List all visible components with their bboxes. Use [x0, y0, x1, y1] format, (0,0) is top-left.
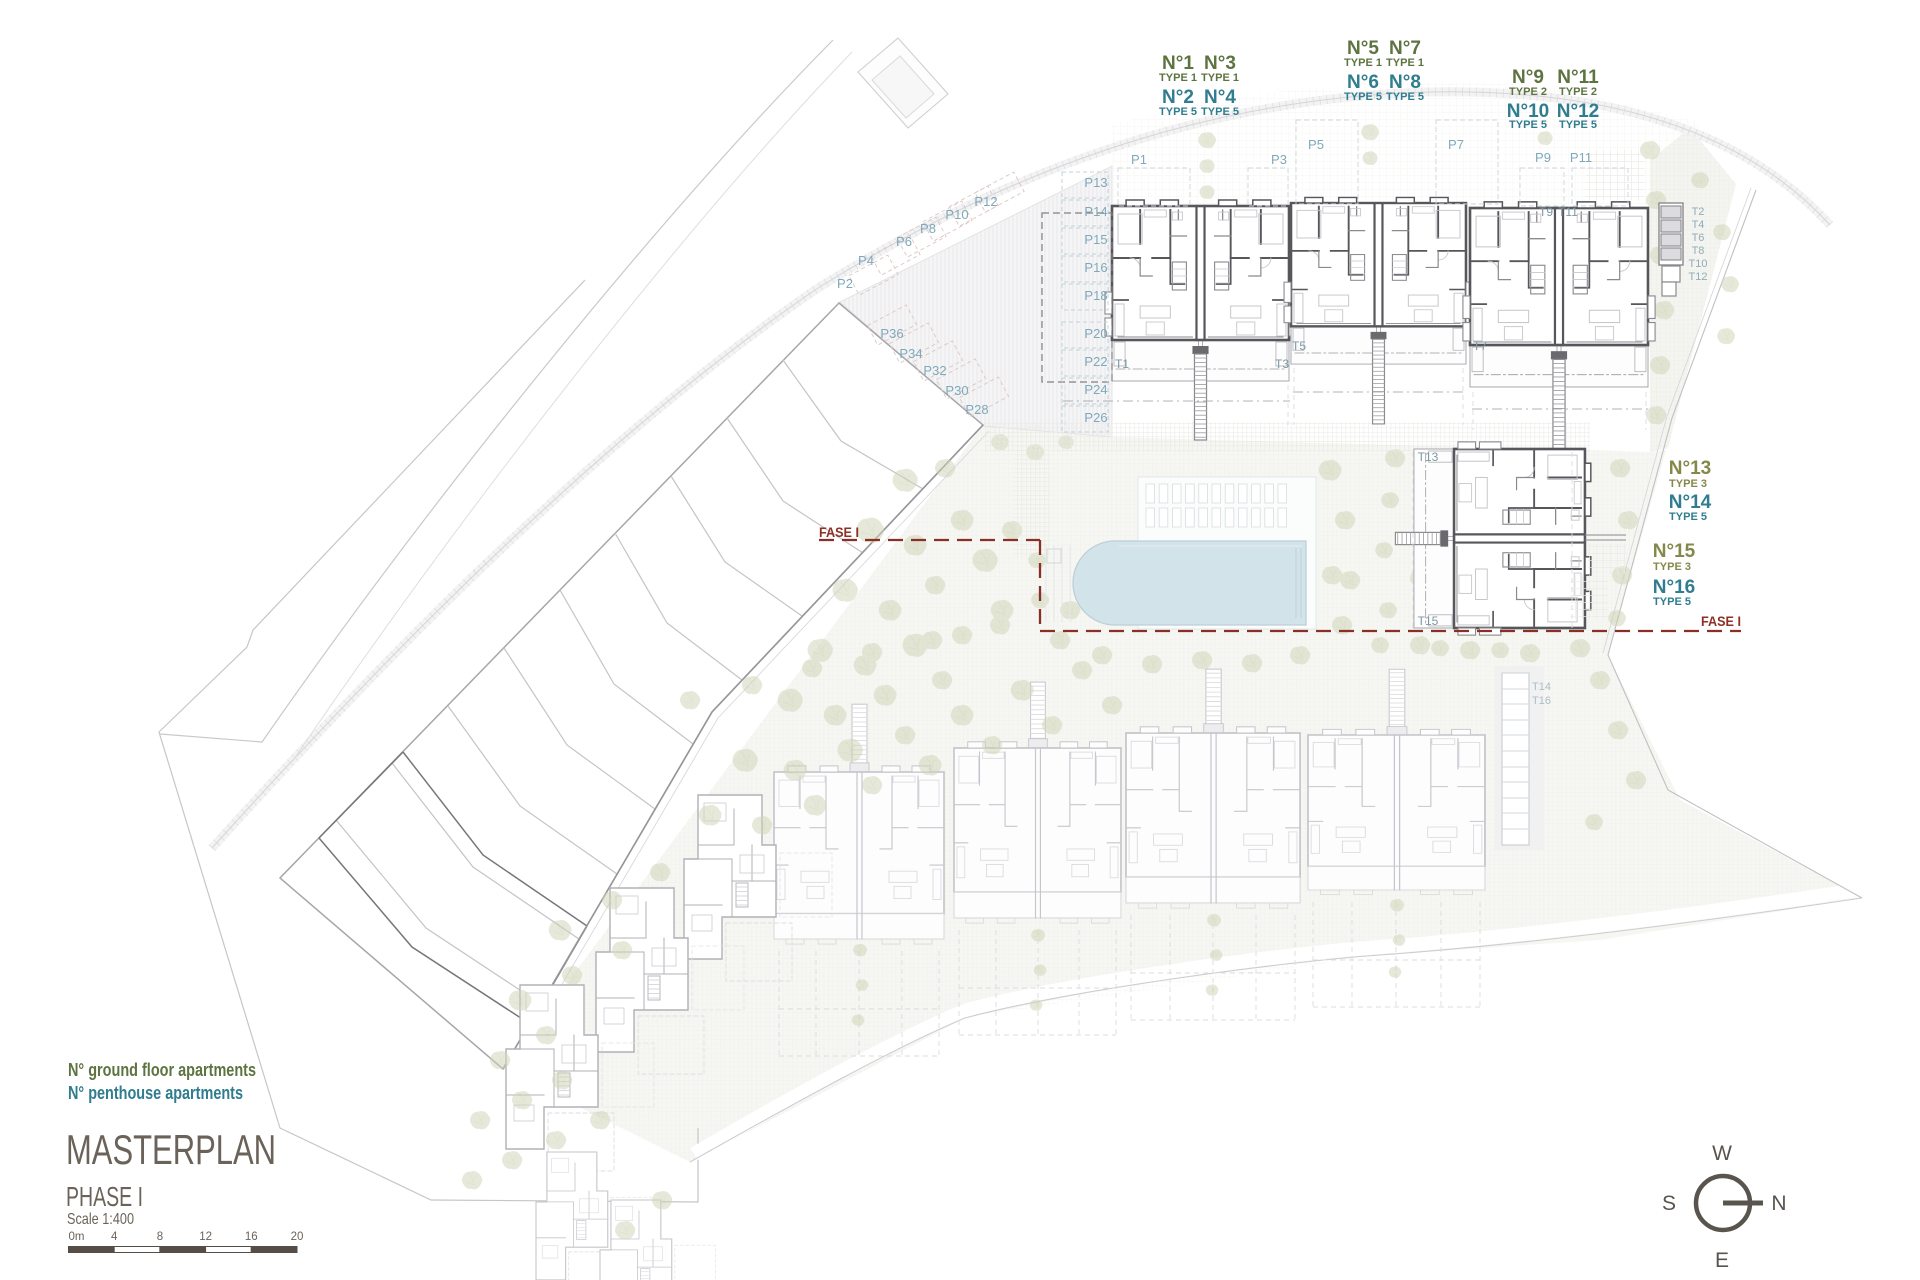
svg-text:TYPE 5: TYPE 5: [1509, 119, 1547, 131]
svg-text:TYPE 2: TYPE 2: [1509, 86, 1547, 98]
svg-text:P26: P26: [1084, 410, 1107, 425]
svg-text:P28: P28: [965, 402, 988, 417]
svg-text:P34: P34: [899, 346, 922, 361]
svg-text:16: 16: [245, 1231, 258, 1243]
svg-text:T7: T7: [1473, 339, 1487, 353]
svg-text:N° penthouse apartments: N° penthouse apartments: [68, 1083, 243, 1103]
svg-text:N° ground floor apartments: N° ground floor apartments: [68, 1060, 256, 1080]
svg-text:TYPE 1: TYPE 1: [1201, 72, 1239, 84]
svg-text:P36: P36: [880, 326, 903, 341]
svg-text:N°4: N°4: [1204, 87, 1236, 108]
svg-text:TYPE 5: TYPE 5: [1159, 106, 1197, 118]
svg-text:P13: P13: [1084, 175, 1107, 190]
svg-text:S: S: [1662, 1192, 1676, 1215]
svg-text:T11: T11: [1558, 205, 1578, 219]
svg-text:T8: T8: [1692, 245, 1705, 257]
svg-text:P30: P30: [945, 383, 968, 398]
svg-text:T13: T13: [1418, 450, 1439, 464]
svg-text:P1: P1: [1131, 152, 1147, 167]
svg-text:TYPE 5: TYPE 5: [1201, 106, 1239, 118]
svg-text:TYPE 3: TYPE 3: [1669, 478, 1707, 490]
svg-text:P16: P16: [1084, 260, 1107, 275]
svg-text:P10: P10: [945, 207, 968, 222]
svg-text:FASE I: FASE I: [1701, 613, 1741, 629]
svg-text:P15: P15: [1084, 232, 1107, 247]
svg-text:MASTERPLAN: MASTERPLAN: [66, 1126, 276, 1173]
svg-text:12: 12: [199, 1231, 212, 1243]
svg-text:TYPE 5: TYPE 5: [1386, 91, 1424, 103]
svg-text:N°5: N°5: [1347, 38, 1379, 59]
svg-text:T4: T4: [1692, 219, 1705, 231]
svg-text:0m: 0m: [69, 1231, 85, 1243]
svg-text:T14: T14: [1532, 681, 1551, 693]
svg-text:TYPE 5: TYPE 5: [1344, 91, 1382, 103]
svg-text:N: N: [1771, 1192, 1786, 1215]
svg-text:T1: T1: [1115, 357, 1129, 371]
svg-text:P14: P14: [1084, 204, 1107, 219]
svg-text:P32: P32: [923, 363, 946, 378]
svg-text:T12: T12: [1689, 271, 1708, 283]
svg-text:N°6: N°6: [1347, 72, 1379, 93]
svg-text:N°15: N°15: [1653, 541, 1696, 562]
svg-text:N°8: N°8: [1389, 72, 1421, 93]
svg-text:P12: P12: [974, 194, 997, 209]
svg-text:4: 4: [111, 1231, 118, 1243]
svg-text:T10: T10: [1689, 258, 1708, 270]
svg-text:P11: P11: [1570, 150, 1592, 165]
svg-text:TYPE 1: TYPE 1: [1344, 57, 1382, 69]
svg-text:P18: P18: [1084, 288, 1107, 303]
svg-text:N°1: N°1: [1162, 53, 1194, 74]
svg-text:TYPE 5: TYPE 5: [1669, 511, 1707, 523]
svg-text:N°16: N°16: [1653, 577, 1695, 598]
svg-text:P6: P6: [896, 234, 912, 249]
svg-text:TYPE 1: TYPE 1: [1159, 72, 1197, 84]
svg-text:N°7: N°7: [1389, 38, 1421, 59]
svg-text:N°11: N°11: [1557, 67, 1599, 88]
svg-text:T6: T6: [1692, 232, 1705, 244]
svg-text:P22: P22: [1084, 354, 1107, 369]
svg-text:T3: T3: [1275, 357, 1289, 371]
svg-text:W: W: [1712, 1142, 1732, 1165]
svg-text:TYPE 1: TYPE 1: [1386, 57, 1424, 69]
svg-text:P2: P2: [837, 276, 853, 291]
svg-text:P5: P5: [1308, 137, 1324, 152]
svg-text:TYPE 5: TYPE 5: [1653, 596, 1691, 608]
svg-text:N°13: N°13: [1669, 458, 1711, 479]
svg-text:P24: P24: [1084, 382, 1107, 397]
svg-text:E: E: [1715, 1249, 1729, 1272]
svg-text:8: 8: [157, 1231, 163, 1243]
svg-text:T2: T2: [1692, 206, 1705, 218]
svg-text:TYPE 5: TYPE 5: [1559, 119, 1597, 131]
svg-text:P20: P20: [1084, 326, 1107, 341]
svg-text:P8: P8: [920, 221, 936, 236]
svg-text:N°9: N°9: [1512, 67, 1544, 88]
svg-text:N°3: N°3: [1204, 53, 1236, 74]
svg-text:PHASE I: PHASE I: [66, 1181, 143, 1212]
svg-text:FASE I: FASE I: [819, 524, 859, 540]
svg-text:N°14: N°14: [1669, 492, 1712, 513]
svg-text:P4: P4: [858, 253, 874, 268]
svg-text:T16: T16: [1532, 695, 1551, 707]
svg-text:TYPE 2: TYPE 2: [1559, 86, 1597, 98]
svg-text:P9: P9: [1535, 150, 1551, 165]
svg-text:T5: T5: [1292, 339, 1306, 353]
svg-text:20: 20: [291, 1231, 304, 1243]
svg-text:P7: P7: [1448, 137, 1464, 152]
svg-text:T15: T15: [1418, 614, 1439, 628]
svg-text:N°2: N°2: [1162, 87, 1194, 108]
svg-text:TYPE 3: TYPE 3: [1653, 561, 1691, 573]
svg-text:Scale 1:400: Scale 1:400: [67, 1211, 134, 1228]
svg-text:P3: P3: [1271, 152, 1287, 167]
svg-text:T9: T9: [1539, 205, 1553, 219]
